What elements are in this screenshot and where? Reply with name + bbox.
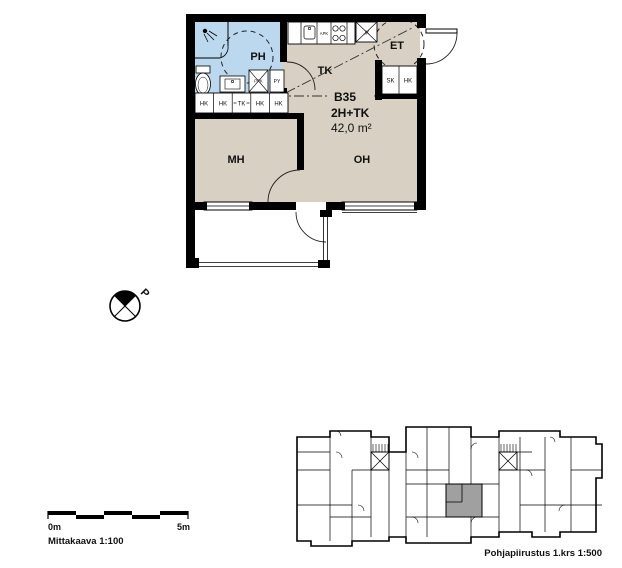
fridge-reservation-label: JK [364,31,371,37]
north-label: P [138,287,152,301]
balcony [186,210,332,268]
north-arrow: P [110,287,152,321]
laundry-cabinet-label: PY [274,79,281,85]
north-needle-icon [114,291,135,306]
apartment-plan: PPK PY HK HK TK HK HK [186,14,457,268]
scale-start-label: 0m [48,522,61,532]
wardrobe-label: TK [238,102,246,108]
entrance-door-leaf [426,29,457,33]
toilet [196,66,211,95]
floor-plan-svg: PPK PY HK HK TK HK HK [0,0,622,568]
room-label-bathroom: PH [250,51,265,63]
room-label-living: OH [354,154,371,166]
bathroom-sink [220,76,245,92]
room-label-kitchen: TK [318,65,333,77]
shower-head-icon [203,29,207,33]
room-label-entry: ET [390,40,404,52]
bedroom-window [204,202,252,210]
entry-closet-label: SK [386,79,394,85]
highlighted-unit [446,484,482,517]
washer-reservation-label: PPK [254,79,263,84]
scale-end-label: 5m [177,522,190,532]
dishwasher-reservation-label: APK [320,31,329,36]
unit-type-label: 2H+TK [331,106,370,120]
scale-caption: Mittakaava 1:100 [48,536,124,547]
scale-bar: 0m 5m Mittakaava 1:100 [48,511,190,547]
entrance-door-arc [426,33,457,64]
unit-area-label: 42,0 m² [331,121,372,135]
wardrobe-label: HK [256,102,264,108]
wardrobe-row: HK HK TK HK HK [195,93,288,113]
unit-id-label: B35 [334,90,356,104]
room-label-bedroom: MH [227,154,244,166]
entry-closets: SK HK [382,66,417,94]
wardrobe-label: HK [274,102,282,108]
entry-closet-label: HK [404,79,412,85]
wardrobe-label: HK [219,102,227,108]
key-plan: Pohjapiirustus 1.krs 1:500 [297,427,602,559]
wardrobe-label: HK [200,102,208,108]
living-room-window [342,202,417,213]
tap-icon [308,27,310,29]
architectural-drawing-sheet: PPK PY HK HK TK HK HK [0,0,622,568]
keyplan-caption: Pohjapiirustus 1.krs 1:500 [484,548,602,559]
